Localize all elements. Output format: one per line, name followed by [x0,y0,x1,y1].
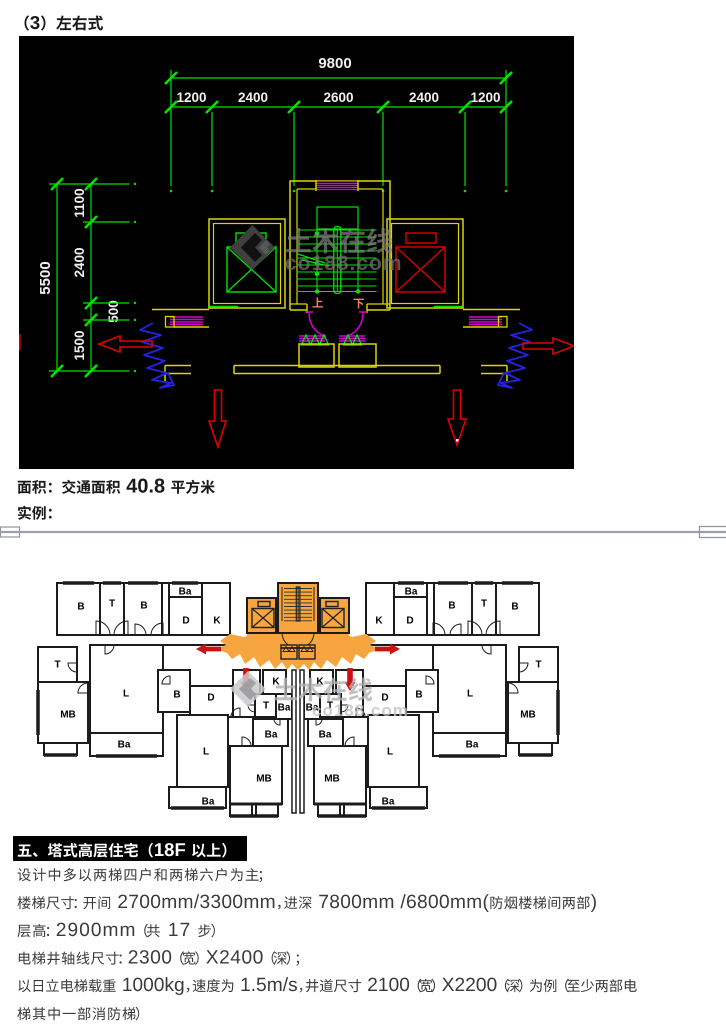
svg-text:K: K [213,616,221,627]
svg-text:T: T [481,599,487,610]
svg-text:1200: 1200 [470,90,500,105]
svg-text:T: T [54,660,60,671]
svg-text:T: T [535,660,541,671]
svg-text:D: D [182,616,189,627]
svg-text:B: B [77,602,84,613]
svg-text:MB: MB [60,710,76,721]
svg-text:1200: 1200 [176,90,206,105]
svg-text:D: D [207,693,214,704]
svg-text:1500: 1500 [72,330,87,360]
svg-text:L: L [387,747,393,758]
svg-text:B: B [448,601,455,612]
svg-text:D: D [406,616,413,627]
svg-text:co188.com: co188.com [285,252,403,275]
svg-text:2400: 2400 [409,90,439,105]
svg-text:L: L [123,689,129,700]
svg-text:B: B [415,690,422,701]
svg-text:L: L [467,689,473,700]
svg-text:Ba: Ba [319,730,332,741]
svg-text:Ba: Ba [179,587,192,598]
svg-text:500: 500 [106,300,121,323]
svg-text:Ba: Ba [278,703,291,714]
svg-text:T: T [263,701,269,712]
svg-text:MB: MB [324,774,340,785]
svg-text:L: L [203,747,209,758]
svg-text:T: T [109,599,115,610]
svg-text:co188.com: co188.com [312,701,409,720]
svg-text:Ba: Ba [382,797,395,808]
svg-text:2600: 2600 [323,90,353,105]
svg-text:5500: 5500 [37,261,54,294]
svg-text:B: B [173,690,180,701]
svg-text:B: B [140,601,147,612]
svg-text:Ba: Ba [118,740,131,751]
svg-text:1100: 1100 [72,188,87,217]
svg-text:2400: 2400 [238,90,268,105]
svg-text:MB: MB [520,710,536,721]
svg-text:Ba: Ba [405,587,418,598]
svg-text:Ba: Ba [202,797,215,808]
svg-text:B: B [511,602,518,613]
svg-text:9800: 9800 [318,55,351,72]
svg-text:2400: 2400 [72,247,87,277]
svg-text:K: K [375,616,383,627]
svg-text:Ba: Ba [466,740,479,751]
svg-text:Ba: Ba [265,730,278,741]
svg-text:MB: MB [256,774,272,785]
